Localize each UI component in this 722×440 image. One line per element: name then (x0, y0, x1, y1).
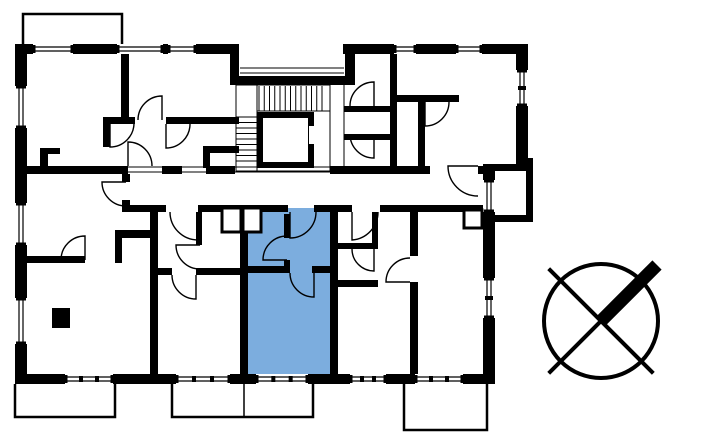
vent-shaft (222, 208, 241, 232)
wall (338, 243, 378, 249)
wall (121, 54, 129, 117)
wall (162, 166, 182, 174)
door-swing (448, 166, 478, 196)
door-swing (172, 275, 196, 299)
door-swing (128, 142, 152, 166)
wall (344, 106, 394, 112)
door-swing (138, 96, 162, 120)
floorplan-drawing (0, 0, 722, 440)
wall (410, 205, 418, 374)
north-indicator-icon (544, 264, 658, 378)
door-swing (110, 123, 134, 147)
wall (158, 268, 172, 275)
door-swing (350, 82, 374, 106)
door-swing (386, 258, 410, 282)
wall (122, 205, 150, 212)
wall (52, 308, 70, 328)
wall (338, 280, 378, 287)
door-swing (352, 249, 374, 271)
balcony (404, 384, 487, 430)
wall (115, 230, 122, 263)
wall (526, 164, 533, 222)
door-swing (425, 102, 449, 126)
wall (343, 44, 528, 54)
wall (230, 76, 355, 85)
wall (15, 166, 128, 174)
wall (103, 117, 110, 147)
wall (122, 174, 130, 182)
balcony (172, 384, 313, 417)
vent-shaft (464, 210, 482, 228)
vent-shaft (243, 208, 261, 232)
wall (158, 205, 166, 212)
balcony (15, 384, 115, 417)
wall (150, 205, 158, 374)
door-swing (166, 124, 190, 148)
balcony (23, 14, 122, 48)
wall (344, 134, 394, 140)
wall (418, 102, 425, 166)
wall (330, 166, 430, 174)
wall-gaps (410, 256, 418, 282)
elevator (257, 112, 314, 168)
wall (478, 166, 483, 174)
wall (312, 266, 332, 273)
wall (15, 256, 85, 263)
wall (330, 205, 338, 374)
wall (206, 166, 235, 174)
wall (196, 268, 240, 275)
wall (483, 164, 495, 180)
wall (397, 95, 459, 102)
door-swing (176, 245, 200, 269)
wall (284, 214, 290, 238)
wall (203, 146, 210, 168)
wall (244, 266, 290, 273)
door-swing (170, 212, 198, 240)
wall (166, 117, 239, 124)
floorplan-page (0, 0, 722, 440)
wall (40, 148, 60, 154)
